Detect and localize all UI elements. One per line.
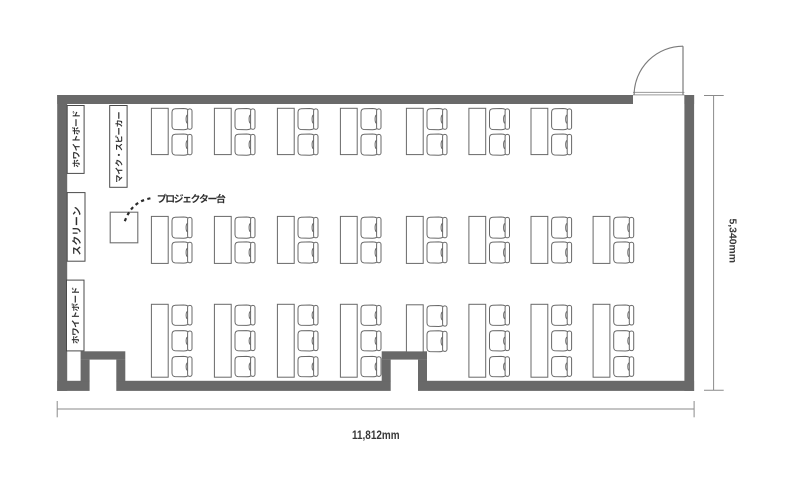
svg-text:11,812mm: 11,812mm bbox=[352, 428, 400, 442]
svg-text:5,340mm: 5,340mm bbox=[727, 219, 738, 264]
